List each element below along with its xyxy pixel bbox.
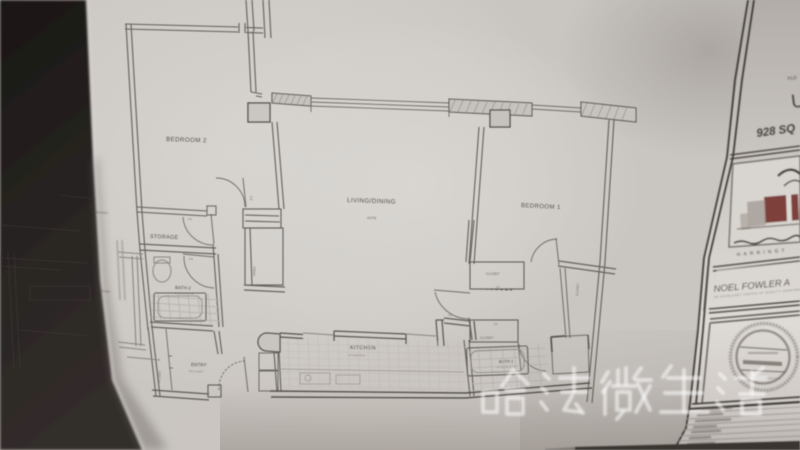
svg-text:KITCHEN: KITCHEN bbox=[350, 345, 376, 351]
svg-text:2-4: 2-4 bbox=[189, 257, 193, 261]
svg-text:W/ CLOSET: W/ CLOSET bbox=[189, 369, 204, 374]
svg-text:BATH 2: BATH 2 bbox=[175, 285, 191, 291]
svg-text:2-0: 2-0 bbox=[494, 322, 498, 326]
svg-text:BATH 1: BATH 1 bbox=[499, 358, 514, 364]
svg-text:CLOSET: CLOSET bbox=[480, 336, 494, 340]
svg-text:2-8: 2-8 bbox=[448, 313, 452, 317]
svg-text:ENTRY: ENTRY bbox=[191, 362, 207, 368]
svg-text:LINEN: LINEN bbox=[252, 266, 257, 276]
svg-text:2-0: 2-0 bbox=[496, 285, 500, 289]
svg-text:BEDROOM 2: BEDROOM 2 bbox=[166, 136, 207, 144]
svg-text:NOTE: NOTE bbox=[367, 216, 377, 220]
svg-text:W/ CABINETS: W/ CABINETS bbox=[348, 353, 365, 357]
svg-text:STORAGE: STORAGE bbox=[150, 234, 179, 241]
svg-text:CLOSET: CLOSET bbox=[486, 272, 500, 276]
svg-text:2-8: 2-8 bbox=[249, 196, 253, 201]
svg-text:2-0: 2-0 bbox=[188, 217, 192, 221]
svg-text:UN: UN bbox=[790, 89, 800, 113]
